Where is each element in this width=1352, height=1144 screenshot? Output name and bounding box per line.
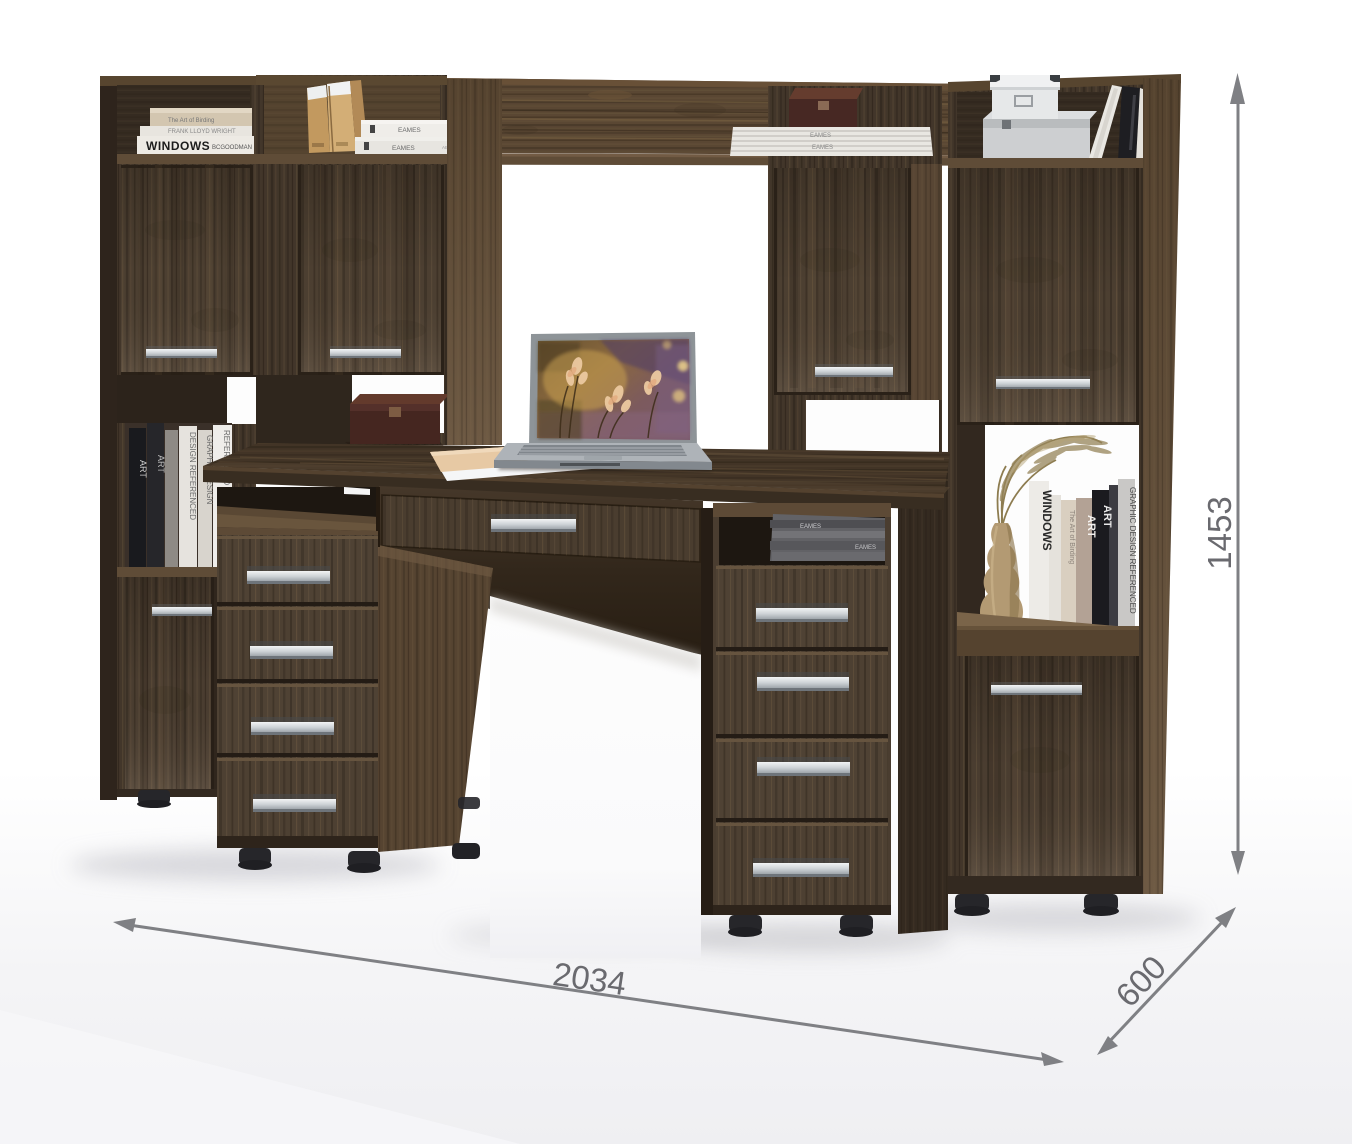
svg-text:ART: ART (138, 460, 148, 478)
svg-text:BCGOODMAN: BCGOODMAN (212, 145, 252, 151)
svg-text:EAMES: EAMES (800, 524, 821, 530)
svg-text:EAMES: EAMES (398, 127, 421, 134)
svg-text:EAMES: EAMES (810, 133, 831, 139)
svg-text:EAMES: EAMES (855, 545, 876, 551)
svg-text:ART: ART (1085, 515, 1097, 538)
svg-text:The Art of Birding: The Art of Birding (168, 118, 214, 124)
svg-text:WINDOWS: WINDOWS (1040, 490, 1054, 551)
svg-text:ART: ART (156, 455, 166, 473)
svg-text:WINDOWS: WINDOWS (146, 139, 210, 153)
svg-text:GRAPHIC DESIGN REFERENCED: GRAPHIC DESIGN REFERENCED (1128, 487, 1137, 614)
svg-text:DESIGN REFERENCED: DESIGN REFERENCED (188, 432, 197, 520)
svg-text:FRANK LLOYD WRIGHT: FRANK LLOYD WRIGHT (168, 129, 236, 135)
svg-text:The Art of Birding: The Art of Birding (1068, 510, 1075, 564)
svg-text:EAMES: EAMES (392, 145, 415, 152)
svg-text:EAMES: EAMES (812, 145, 833, 151)
svg-text:ART: ART (1101, 505, 1113, 528)
svg-text:1453: 1453 (1201, 496, 1238, 569)
